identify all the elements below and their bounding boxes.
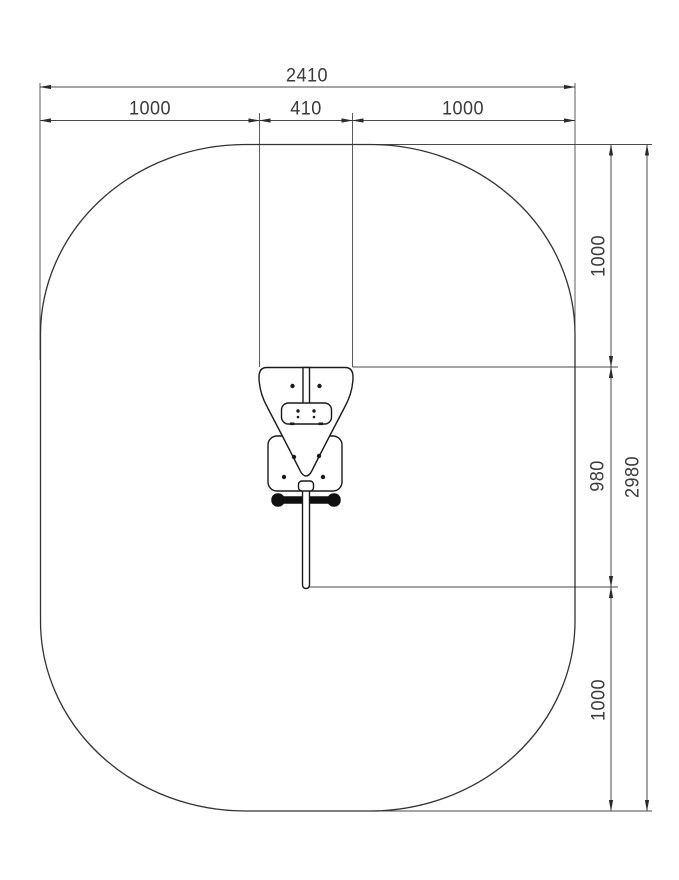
dim-right-clearance-label: 1000 [442,100,484,119]
dim-overall-width-label: 2410 [286,67,328,86]
dim-left-clearance-label: 1000 [129,100,171,119]
equipment-top-view [259,368,353,589]
dim-equipment-width-label: 410 [290,100,322,119]
equipment-post [303,483,310,589]
dim-bottom-clearance-label: 1000 [590,679,609,721]
technical-drawing-canvas: 2410 1000 410 1000 1000 980 1000 2980 [0,0,679,880]
dim-equipment-depth-label: 980 [589,460,608,492]
equipment-post-collar [299,481,314,491]
equipment-center-stem [303,368,310,405]
dim-overall-length-label: 2980 [624,456,643,498]
dim-top-clearance-label: 1000 [590,235,609,277]
drawing-linework [0,0,679,880]
equipment-panel [282,403,332,424]
extension-lines [40,83,652,811]
